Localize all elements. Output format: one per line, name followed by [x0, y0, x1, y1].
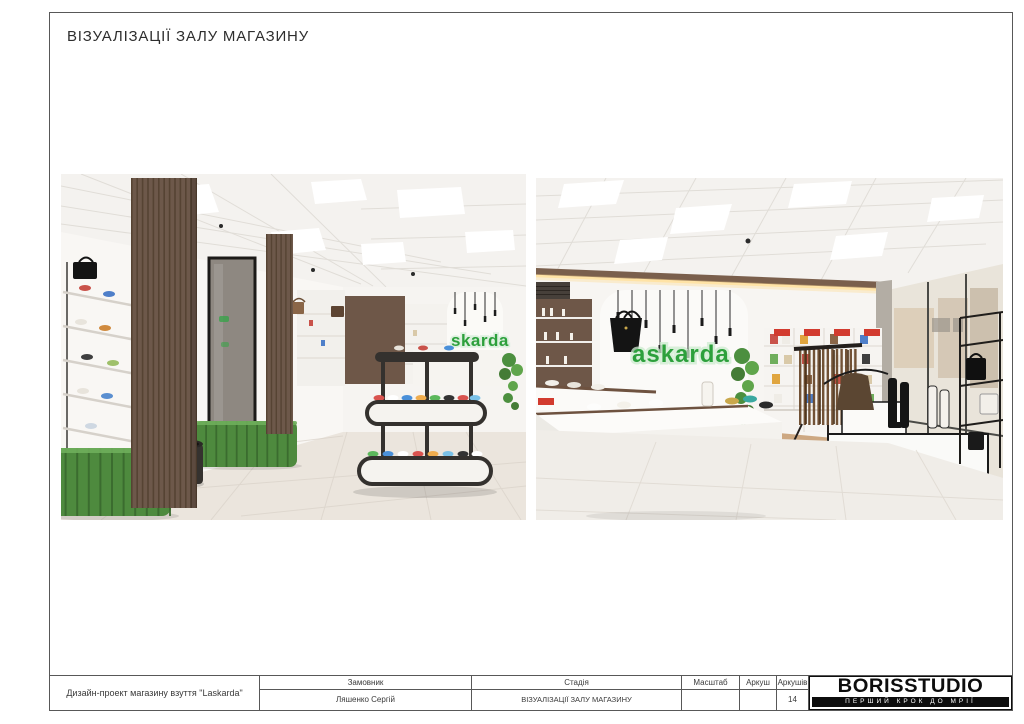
field-stage-label: Стадія — [472, 676, 681, 690]
page-title: ВІЗУАЛІЗАЦІЇ ЗАЛУ МАГАЗИНУ — [67, 28, 309, 45]
brand-sign: askarda — [632, 341, 730, 368]
title-block: Дизайн-проект магазину взуття "Laskarda"… — [50, 675, 1012, 710]
brand-sign: skarda — [451, 331, 509, 350]
field-stage: Стадія ВІЗУАЛІЗАЦІЇ ЗАЛУ МАГАЗИНУ — [471, 676, 681, 710]
podium-handbag — [836, 373, 874, 410]
right-render-scene: askarda askarda — [536, 178, 1003, 520]
field-sheet-label: Аркуш — [740, 676, 776, 690]
studio-logo-tagline: ПЕРШИЙ КРОК ДО МРІЇ — [812, 697, 1009, 707]
field-customer-label: Замовник — [260, 676, 471, 690]
care-products-shelf — [536, 299, 592, 395]
studio-logo: BORISSTUDIO ПЕРШИЙ КРОК ДО МРІЇ — [808, 676, 1012, 710]
vent-grille — [536, 282, 570, 299]
field-scale-label: Масштаб — [682, 676, 739, 690]
field-stage-value: ВІЗУАЛІЗАЦІЇ ЗАЛУ МАГАЗИНУ — [472, 690, 681, 710]
mirror — [209, 258, 255, 430]
field-customer: Замовник Ляшенко Сергій — [259, 676, 471, 710]
field-scale: Масштаб — [681, 676, 739, 710]
studio-logo-name: BORISSTUDIO — [804, 677, 1017, 697]
field-customer-value: Ляшенко Сергій — [260, 690, 471, 710]
left-render: skarda skarda — [61, 174, 526, 520]
drawing-sheet: ВІЗУАЛІЗАЦІЇ ЗАЛУ МАГАЗИНУ — [49, 12, 1013, 711]
field-scale-value — [682, 690, 739, 710]
wood-column-large — [131, 178, 197, 508]
wood-column-small — [266, 234, 293, 434]
field-sheet: Аркуш — [739, 676, 776, 710]
field-sheet-value — [740, 690, 776, 710]
project-name: Дизайн-проект магазину взуття "Laskarda" — [50, 676, 259, 710]
studio-logo-box: BORISSTUDIO ПЕРШИЙ КРОК ДО МРІЇ — [809, 676, 1012, 710]
right-render: askarda askarda — [536, 178, 1003, 520]
left-render-scene: skarda skarda — [61, 174, 526, 520]
